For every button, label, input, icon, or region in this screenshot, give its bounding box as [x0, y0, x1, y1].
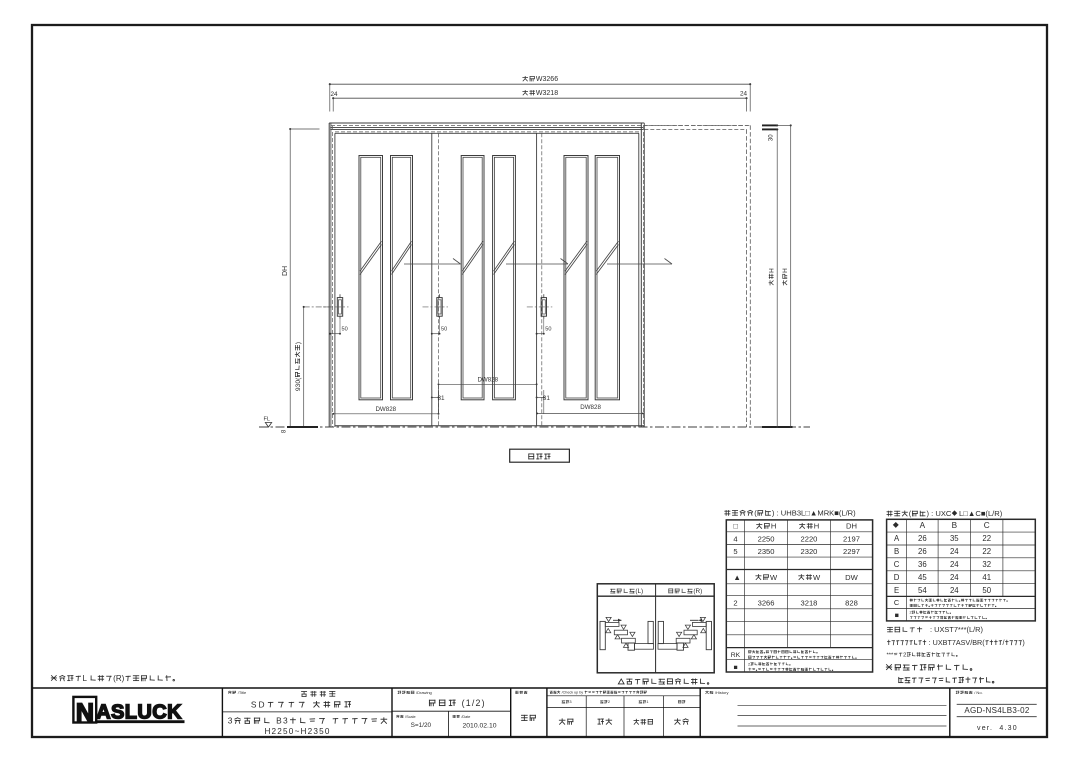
- svg-text:L: L: [83, 674, 89, 683]
- svg-text:L□▲C■(L/R): L□▲C■(L/R): [959, 509, 1003, 518]
- svg-text:31: 31: [438, 395, 446, 402]
- svg-text:(: (: [754, 509, 757, 518]
- svg-text:RK: RK: [731, 652, 741, 659]
- svg-text:35: 35: [950, 534, 959, 543]
- svg-text:B3: B3: [272, 716, 288, 726]
- svg-text:) : UHB3L□▲MRK■(L/R): ) : UHB3L□▲MRK■(L/R): [772, 509, 856, 518]
- svg-text:/Check up by: /Check up by: [561, 691, 585, 695]
- svg-text:H: H: [771, 522, 776, 531]
- svg-text:) : UXC: ) : UXC: [927, 509, 952, 518]
- svg-text:: UXBT7ASV/BR(: : UXBT7ASV/BR(: [927, 638, 986, 647]
- svg-text:828: 828: [845, 598, 858, 607]
- svg-text:2: 2: [748, 661, 750, 666]
- svg-text:50: 50: [441, 327, 447, 333]
- svg-text:(L): (L): [635, 588, 643, 595]
- svg-text:▲: ▲: [733, 573, 741, 582]
- svg-text:: UXST7***(L/R): : UXST7***(L/R): [930, 625, 983, 634]
- svg-text:(1/2): (1/2): [458, 698, 486, 708]
- svg-text:N: N: [76, 699, 94, 727]
- svg-text:B: B: [894, 547, 899, 556]
- svg-text:A: A: [920, 521, 926, 530]
- svg-text:2197: 2197: [843, 534, 860, 543]
- svg-text:W: W: [770, 573, 778, 582]
- svg-text:32: 32: [982, 560, 991, 569]
- svg-text:SD: SD: [251, 699, 267, 709]
- svg-text:AGD-NS4LB3-02: AGD-NS4LB3-02: [964, 706, 1030, 715]
- svg-text:2010.02.10: 2010.02.10: [462, 723, 496, 730]
- svg-text:3: 3: [569, 699, 571, 704]
- svg-text:2: 2: [733, 598, 737, 607]
- svg-text:5: 5: [733, 547, 737, 556]
- svg-text:26: 26: [918, 534, 927, 543]
- svg-text:24: 24: [950, 547, 959, 556]
- svg-text:26: 26: [918, 547, 927, 556]
- svg-text:22: 22: [982, 547, 991, 556]
- svg-text:2: 2: [608, 699, 610, 704]
- svg-text:DW828: DW828: [375, 406, 396, 413]
- svg-text:■: ■: [734, 664, 738, 671]
- svg-text:C: C: [894, 598, 900, 607]
- svg-text:3218: 3218: [801, 598, 818, 607]
- svg-text:22: 22: [982, 534, 991, 543]
- svg-text:ver. 4.30: ver. 4.30: [977, 725, 1018, 732]
- svg-text:2320: 2320: [801, 547, 818, 556]
- svg-text:/ No.: / No.: [973, 690, 983, 695]
- svg-text:(: (: [909, 509, 912, 518]
- svg-text:/Date: /Date: [460, 715, 470, 719]
- svg-text:2250: 2250: [758, 534, 775, 543]
- svg-text:/Scale: /Scale: [404, 715, 416, 719]
- svg-text:***: ***: [887, 653, 895, 659]
- svg-text:41: 41: [982, 573, 991, 582]
- svg-text:(R): (R): [693, 588, 702, 595]
- svg-text:W: W: [813, 573, 821, 582]
- svg-text:D: D: [894, 573, 900, 582]
- svg-text:(R): (R): [113, 674, 124, 683]
- svg-text:54: 54: [918, 586, 927, 595]
- svg-text:W3218: W3218: [536, 90, 558, 97]
- svg-text:S=1/20: S=1/20: [411, 722, 432, 729]
- svg-text:24: 24: [950, 586, 959, 595]
- svg-text:): ): [1022, 638, 1024, 647]
- svg-text:/: /: [1003, 638, 1005, 647]
- svg-text:B: B: [952, 521, 958, 530]
- svg-text:2: 2: [903, 653, 906, 659]
- svg-text:H: H: [814, 522, 819, 531]
- svg-text:FL: FL: [264, 416, 271, 422]
- svg-text:DH: DH: [282, 266, 289, 276]
- svg-text:ASLUCK: ASLUCK: [96, 701, 182, 723]
- svg-text:DW: DW: [845, 573, 858, 582]
- svg-text:□: □: [733, 522, 738, 531]
- svg-text:2350: 2350: [758, 547, 775, 556]
- svg-text:/History: /History: [714, 690, 729, 695]
- svg-text:W3266: W3266: [536, 76, 558, 83]
- svg-text:30: 30: [768, 134, 774, 141]
- svg-text:/Drawing: /Drawing: [415, 690, 432, 695]
- svg-text:1: 1: [646, 699, 648, 704]
- svg-text:C: C: [894, 560, 900, 569]
- svg-text:3: 3: [228, 716, 234, 726]
- svg-text:DW828: DW828: [580, 404, 601, 411]
- svg-text:2297: 2297: [843, 547, 860, 556]
- svg-text:H: H: [782, 268, 789, 273]
- svg-text:): ): [295, 342, 302, 344]
- svg-text:45: 45: [918, 573, 927, 582]
- svg-text:50: 50: [342, 327, 348, 333]
- svg-text:31: 31: [543, 395, 551, 402]
- svg-text:■: ■: [895, 613, 899, 620]
- svg-text:H: H: [768, 268, 775, 273]
- svg-text:3266: 3266: [758, 598, 775, 607]
- svg-text:4: 4: [733, 534, 737, 543]
- svg-text:24: 24: [950, 573, 959, 582]
- svg-text:50: 50: [545, 327, 551, 333]
- svg-text:24: 24: [950, 560, 959, 569]
- svg-text:E: E: [894, 586, 899, 595]
- svg-text:50: 50: [982, 586, 991, 595]
- svg-text:24: 24: [740, 91, 748, 98]
- svg-text:24: 24: [331, 91, 339, 98]
- svg-text:8: 8: [282, 429, 288, 433]
- svg-text:/Title: /Title: [237, 690, 247, 695]
- svg-text:C: C: [984, 521, 990, 530]
- svg-text:DH: DH: [846, 522, 857, 531]
- svg-text:DW828: DW828: [477, 376, 498, 383]
- svg-text:2220: 2220: [801, 534, 818, 543]
- svg-text:36: 36: [918, 560, 927, 569]
- svg-text:H2250~H2350: H2250~H2350: [264, 727, 330, 736]
- svg-text:A: A: [894, 534, 900, 543]
- svg-text:930(: 930(: [295, 377, 302, 391]
- svg-text:2: 2: [910, 611, 912, 615]
